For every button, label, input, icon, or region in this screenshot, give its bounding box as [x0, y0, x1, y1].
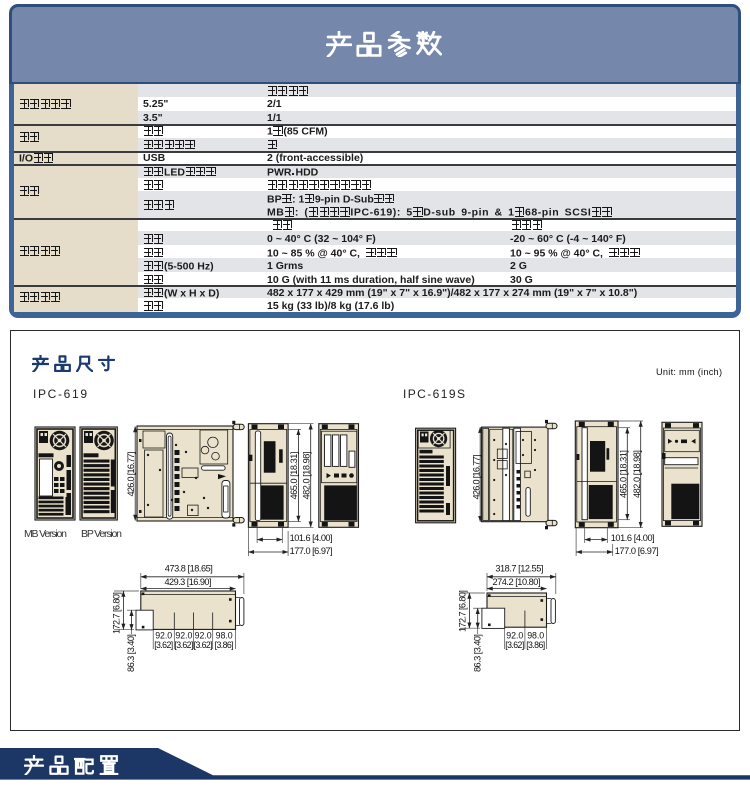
svg-text:426.0 [16.77]: 426.0 [16.77] — [126, 452, 136, 497]
svg-text:172.7 [6.80]: 172.7 [6.80] — [458, 590, 468, 632]
svg-text:177.0 [6.97]: 177.0 [6.97] — [615, 546, 659, 556]
svg-text:177.0 [6.97]: 177.0 [6.97] — [290, 546, 333, 556]
svg-text:[3.62]: [3.62] — [174, 640, 193, 650]
svg-text:86.3 [3.40]: 86.3 [3.40] — [126, 634, 136, 672]
svg-text:482.0 [18.98]: 482.0 [18.98] — [632, 450, 642, 498]
svg-text:[3.62]: [3.62] — [505, 640, 524, 650]
svg-text:86.3 [3.40]: 86.3 [3.40] — [472, 634, 482, 672]
svg-text:274.2 [10.80]: 274.2 [10.80] — [493, 577, 541, 587]
svg-text:Unit: mm (inch): Unit: mm (inch) — [656, 367, 722, 377]
svg-text:318.7 [12.55]: 318.7 [12.55] — [495, 564, 543, 574]
svg-text:BP Version: BP Version — [81, 528, 122, 540]
svg-text:IPC-619: IPC-619 — [33, 387, 87, 401]
svg-text:[3.86]: [3.86] — [526, 640, 545, 650]
svg-text:101.6 [4.00]: 101.6 [4.00] — [290, 533, 333, 543]
svg-text:[3.86]: [3.86] — [215, 640, 234, 650]
svg-text:465.0 [18.31]: 465.0 [18.31] — [619, 450, 629, 498]
svg-text:426.0 [16.77]: 426.0 [16.77] — [471, 455, 481, 500]
svg-text:101.6 [4.00]: 101.6 [4.00] — [611, 533, 655, 543]
svg-text:[3.62]: [3.62] — [154, 640, 173, 650]
svg-text:172.7 [6.80]: 172.7 [6.80] — [112, 592, 122, 634]
svg-text:473.8 [18.65]: 473.8 [18.65] — [165, 564, 213, 574]
svg-text:IPC-619S: IPC-619S — [403, 387, 465, 401]
svg-text:482.0 [18.98]: 482.0 [18.98] — [302, 452, 312, 500]
svg-text:429.3 [16.90]: 429.3 [16.90] — [165, 577, 212, 587]
svg-text:MB Version: MB Version — [24, 528, 67, 540]
svg-text:[3.62]: [3.62] — [194, 640, 213, 650]
svg-text:465.0 [18.31]: 465.0 [18.31] — [289, 452, 299, 500]
